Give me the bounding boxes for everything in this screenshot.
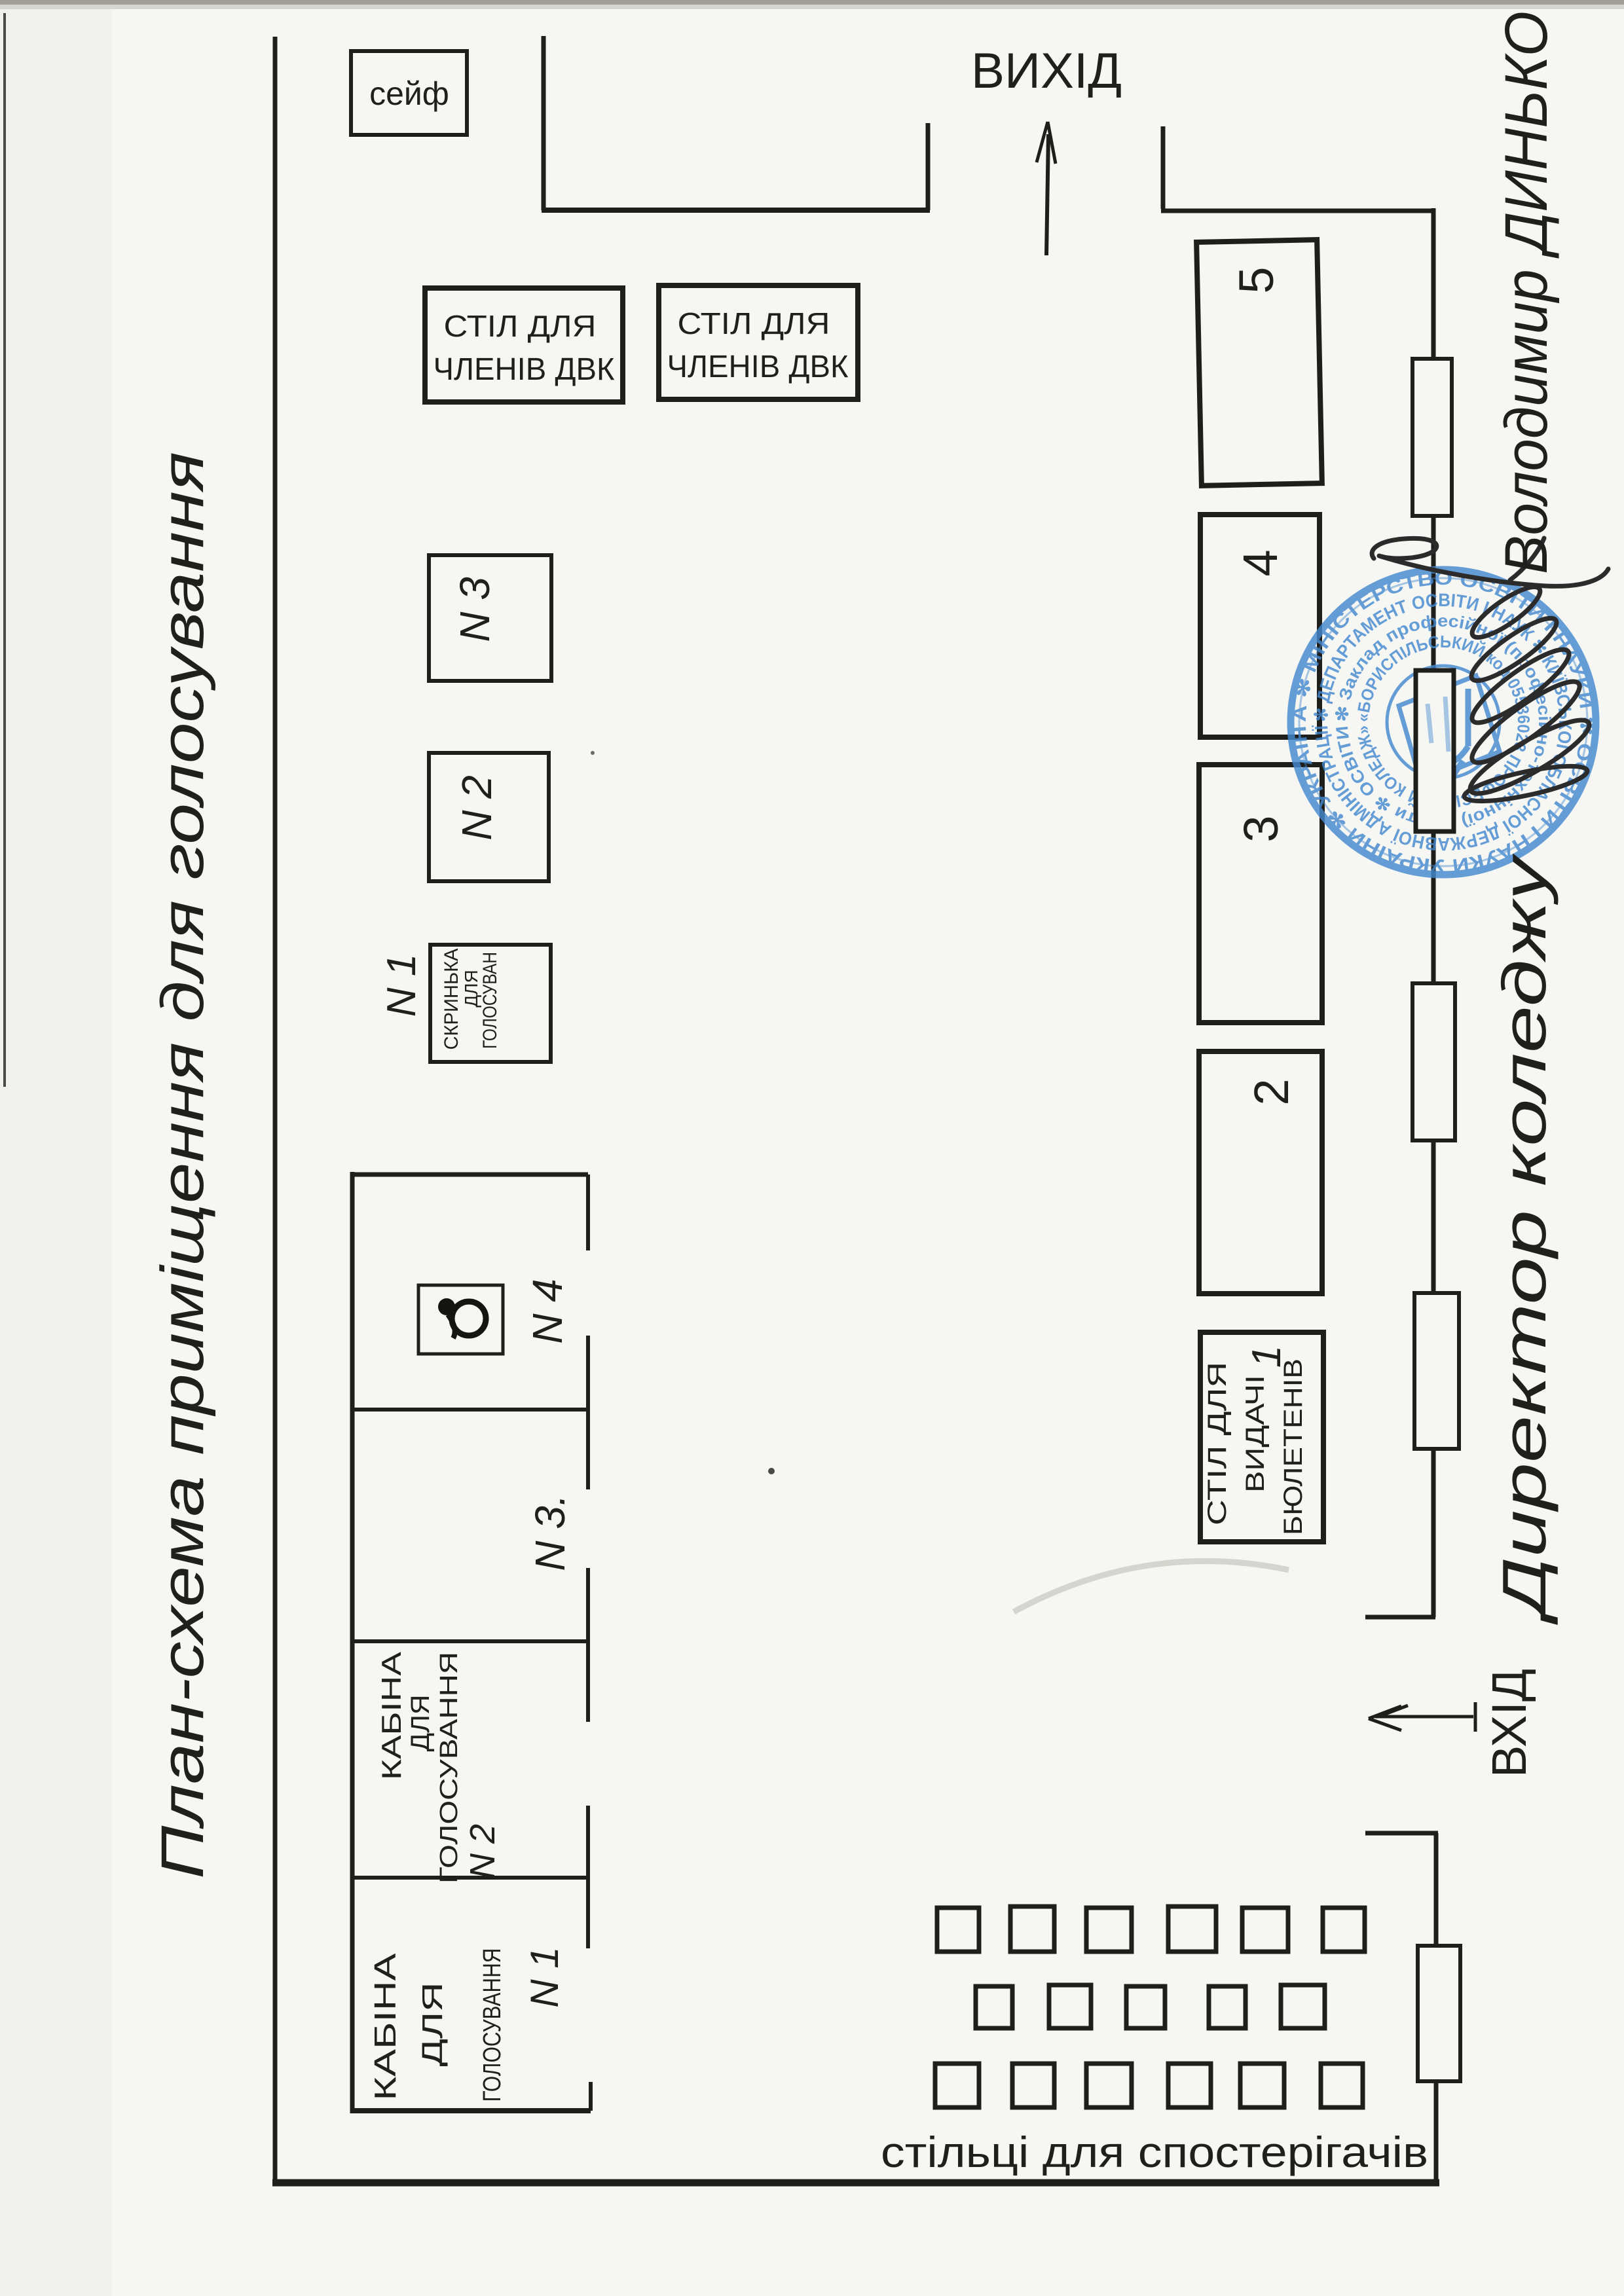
svg-text:N 4: N 4 [524, 1279, 571, 1344]
svg-text:стільці для спостерігачів: стільці для спостерігачів [881, 2128, 1428, 2176]
svg-text:ГОЛОСУВАННЯ: ГОЛОСУВАННЯ [479, 1948, 506, 2102]
svg-text:ГОЛОСУВАН: ГОЛОСУВАН [479, 952, 501, 1049]
svg-text:КАБІНА: КАБІНА [376, 1652, 407, 1780]
svg-text:СТІЛ ДЛЯ: СТІЛ ДЛЯ [678, 306, 830, 340]
svg-text:N 3.: N 3. [526, 1494, 574, 1571]
svg-text:План-схема приміщення для г: План-схема приміщення для голосування [149, 452, 216, 1879]
svg-text:ВИДАЧІ: ВИДАЧІ [1241, 1375, 1270, 1493]
svg-text:ГОЛОСУВАННЯ: ГОЛОСУВАННЯ [435, 1652, 463, 1884]
svg-text:ЧЛЕНІВ ДВК: ЧЛЕНІВ ДВК [434, 352, 615, 387]
svg-text:ДЛЯ: ДЛЯ [406, 1695, 435, 1752]
svg-text:Директор коледжу: Директор коледжу [1490, 853, 1559, 1625]
svg-text:N 1: N 1 [379, 954, 424, 1017]
svg-text:ВХІД: ВХІД [1482, 1669, 1536, 1777]
svg-text:ДЛЯ: ДЛЯ [416, 1982, 449, 2067]
svg-text:5: 5 [1229, 266, 1283, 293]
svg-text:N 3: N 3 [451, 577, 498, 642]
svg-text:N 2: N 2 [463, 1824, 502, 1879]
svg-text:КАБІНА: КАБІНА [368, 1953, 402, 2100]
svg-text:Володимир ДИНЬКО: Володимир ДИНЬКО [1493, 11, 1560, 574]
svg-text:2: 2 [1244, 1078, 1299, 1105]
svg-text:3: 3 [1234, 815, 1288, 842]
svg-text:ВИХІД: ВИХІД [971, 43, 1122, 99]
svg-text:4: 4 [1233, 549, 1287, 576]
svg-text:сейф: сейф [369, 75, 449, 112]
svg-text:СКРИНЬКА: СКРИНЬКА [441, 949, 462, 1050]
svg-text:N 1: N 1 [523, 1946, 566, 2007]
svg-text:СТІЛ ДЛЯ: СТІЛ ДЛЯ [444, 309, 597, 343]
svg-text:БЮЛЕТЕНІВ: БЮЛЕТЕНІВ [1279, 1358, 1308, 1535]
svg-text:СТІЛ ДЛЯ: СТІЛ ДЛЯ [1203, 1362, 1232, 1525]
svg-text:ДЛЯ: ДЛЯ [461, 970, 481, 1008]
svg-text:ЧЛЕНІВ ДВК: ЧЛЕНІВ ДВК [667, 350, 849, 384]
svg-text:N 2: N 2 [453, 775, 500, 841]
